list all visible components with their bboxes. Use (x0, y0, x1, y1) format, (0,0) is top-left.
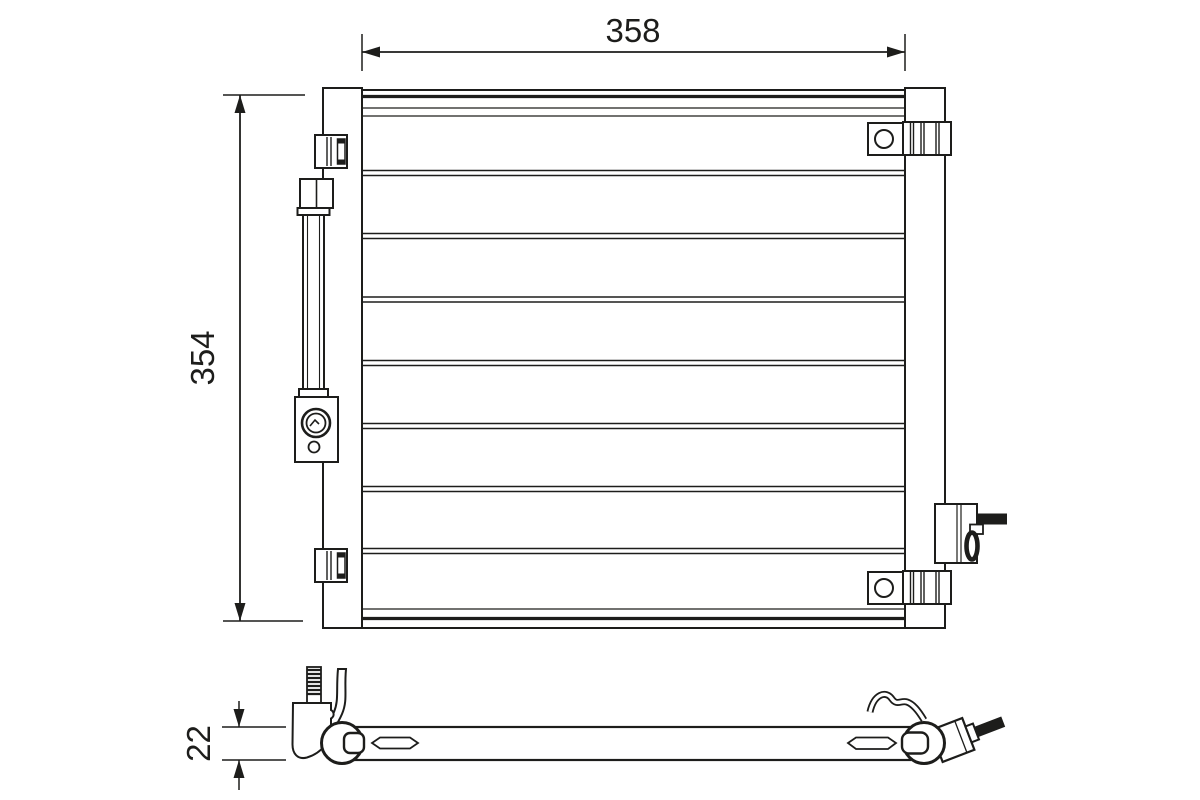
arrow-down-icon (234, 709, 245, 727)
pipe-clamp-top (315, 135, 347, 168)
mounting-bracket-top (868, 122, 951, 155)
core-profile-bar (350, 727, 910, 760)
depth-dimension-label: 22 (180, 725, 217, 762)
drier-tube (303, 215, 324, 389)
dimension-depth: 22 (180, 701, 286, 790)
arrow-up-icon (234, 760, 245, 778)
technical-drawing-page: 358 354 22 (0, 0, 1200, 800)
dimension-height: 354 (184, 95, 305, 621)
right-tank-port (902, 733, 928, 754)
stud-threads (307, 670, 321, 694)
arrow-right-icon (887, 47, 905, 58)
arrow-up-icon (235, 95, 246, 113)
arrow-down-icon (235, 603, 246, 621)
core-tube-lines (362, 171, 905, 554)
receiver-drier (295, 179, 338, 549)
pipe-clamp-bottom (315, 549, 347, 582)
connector-stud (974, 716, 1005, 737)
side-view (293, 667, 1009, 764)
dimension-width: 358 (362, 12, 905, 71)
condenser-technical-drawing: 358 354 22 (0, 0, 1200, 800)
dimensions: 358 354 22 (180, 12, 905, 790)
width-dimension-label: 358 (605, 12, 660, 49)
arrow-left-icon (362, 47, 380, 58)
outlet-stud (977, 514, 1007, 525)
front-view (295, 88, 1007, 628)
height-dimension-label: 354 (184, 330, 221, 385)
left-tank-port (344, 733, 364, 753)
mounting-bracket-bottom (868, 571, 951, 604)
outlet-fitting (935, 504, 1007, 563)
